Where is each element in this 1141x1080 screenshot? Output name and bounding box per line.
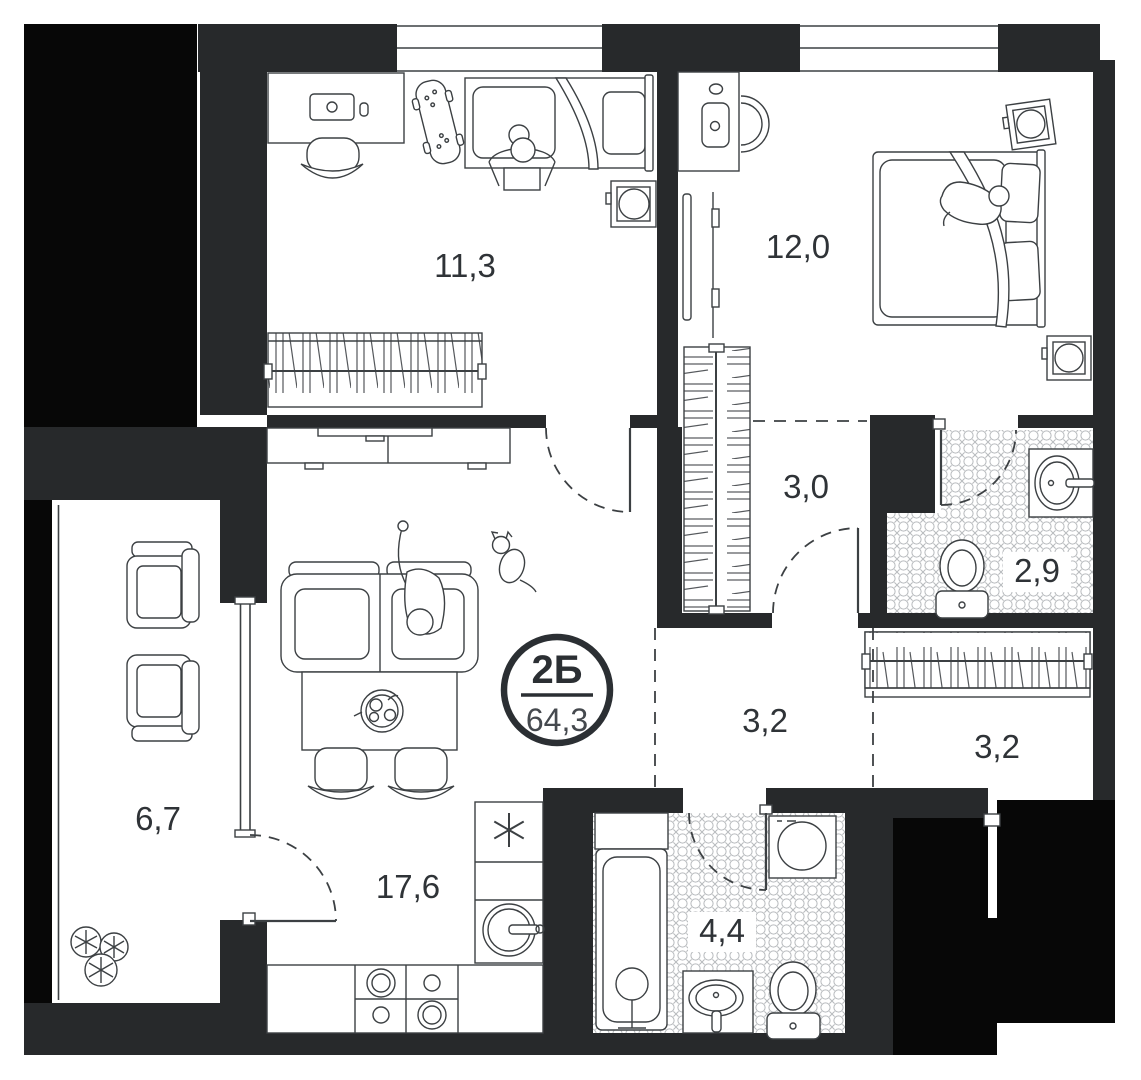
bottom-right-block-a bbox=[893, 818, 997, 1055]
badge-total-area: 64,3 bbox=[526, 702, 588, 738]
door-frame-marker bbox=[760, 805, 772, 814]
bedroom-wall-block bbox=[870, 415, 935, 513]
kitchen-bath-divider bbox=[543, 813, 593, 1033]
wardrobe-icon bbox=[264, 333, 486, 407]
glazing-cap-bottom bbox=[235, 830, 255, 837]
window-icon bbox=[397, 24, 602, 72]
balcony-bottom-wall bbox=[24, 1003, 220, 1055]
room-label: 6,7 bbox=[135, 800, 181, 837]
wall-room1-living-right bbox=[630, 415, 657, 428]
door-jamb-piece bbox=[858, 613, 887, 628]
bathtub-icon bbox=[596, 849, 667, 1030]
badge-unit-type: 2Б bbox=[532, 648, 583, 692]
dining-table-icon bbox=[302, 672, 457, 750]
balcony-inner-wall-top bbox=[220, 500, 267, 603]
corridor-pillar bbox=[657, 427, 682, 627]
room-label: 11,3 bbox=[434, 247, 496, 284]
floor-plan-svg: 11,3 bbox=[0, 0, 1141, 1080]
door-frame-marker bbox=[984, 814, 1000, 826]
sink-icon bbox=[683, 971, 753, 1033]
speaker-icon bbox=[1042, 336, 1091, 380]
unit-badge: 2Б 64,3 bbox=[504, 637, 610, 743]
corridor-bottom-wall bbox=[657, 613, 772, 628]
room-label: 3,2 bbox=[742, 702, 788, 739]
room-label: 3,0 bbox=[783, 468, 829, 505]
washing-machine-icon bbox=[769, 816, 836, 878]
speaker-icon bbox=[606, 181, 656, 227]
armchair-icon bbox=[127, 655, 199, 741]
top-wall-seg1 bbox=[198, 24, 397, 72]
bathroom-main-top-wall-left bbox=[543, 788, 683, 813]
sink-icon bbox=[1029, 449, 1094, 517]
shaft-block bbox=[24, 24, 197, 427]
room-label: 4,4 bbox=[699, 912, 745, 949]
room-label: 3,2 bbox=[974, 728, 1020, 765]
glazing-cap-top bbox=[235, 597, 255, 604]
sofa-icon bbox=[281, 562, 478, 672]
wall-room1-living-left bbox=[267, 415, 546, 428]
chair-icon bbox=[388, 748, 454, 799]
window-icon bbox=[800, 24, 998, 72]
tv-icon bbox=[318, 428, 432, 436]
chair-icon bbox=[308, 748, 374, 799]
toilet-icon bbox=[767, 962, 820, 1039]
bed-icon bbox=[873, 150, 1045, 327]
top-wall-seg3 bbox=[998, 24, 1100, 72]
balcony-inner-wall-bottom bbox=[220, 920, 267, 1055]
armchair-icon bbox=[127, 542, 199, 628]
room-label: 17,6 bbox=[376, 868, 440, 905]
bottom-right-band bbox=[845, 788, 988, 818]
bath-shelf bbox=[595, 813, 668, 849]
floor-plan: 11,3 bbox=[0, 0, 1141, 1080]
top-wall-seg2 bbox=[602, 24, 800, 72]
bathroom-ensuite-bottom-wall bbox=[887, 613, 1115, 628]
faucet-icon bbox=[1066, 479, 1094, 487]
wardrobe-icon bbox=[862, 632, 1092, 697]
toilet-icon bbox=[936, 540, 988, 618]
room-hallway: 3,2 bbox=[742, 702, 788, 739]
room-label: 12,0 bbox=[766, 228, 830, 265]
room-label: 2,9 bbox=[1014, 552, 1060, 589]
wall-between-bedrooms bbox=[657, 24, 678, 427]
tv-stand bbox=[366, 436, 384, 441]
door-frame-marker bbox=[243, 913, 255, 925]
bedroom-wall-strip bbox=[870, 513, 887, 613]
wall-left-of-room1 bbox=[200, 72, 267, 415]
tv-console-icon bbox=[267, 428, 510, 469]
faucet-icon bbox=[712, 1011, 721, 1032]
wardrobe-icon bbox=[684, 344, 750, 614]
desk-icon bbox=[678, 72, 739, 171]
desk-icon bbox=[268, 73, 404, 143]
laptop bbox=[504, 168, 540, 190]
balcony-outer-wall bbox=[24, 500, 52, 1003]
door-frame-marker bbox=[933, 419, 945, 429]
right-wall bbox=[1093, 60, 1115, 800]
wall-below-shaft bbox=[24, 427, 267, 500]
bottom-right-strip bbox=[845, 813, 893, 1055]
bedroom-bottom-wall-right bbox=[1018, 415, 1093, 428]
bottom-right-block-b bbox=[997, 800, 1115, 1023]
